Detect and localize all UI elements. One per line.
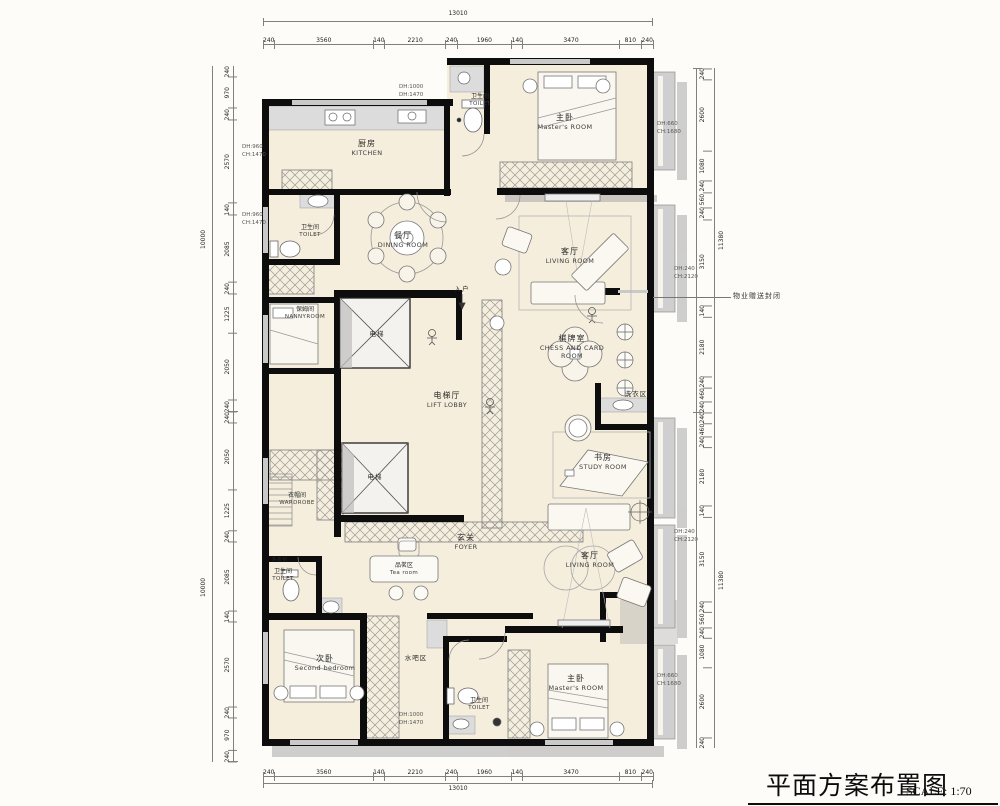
dim-segment: 240 [697,207,708,218]
dim-segment: 240 [697,601,708,612]
dim-segment: 240 [697,627,708,638]
dim-segment: 240 [222,283,233,294]
room-label-living-bottom: 客厅LIVING ROOM [566,551,615,569]
room-label-elevator-lower: 电梯 [368,473,383,481]
room-label-laundry: 洗衣区 [625,390,648,398]
dim-segment: 810 [619,32,641,44]
dim-segment: 2050 [222,423,233,490]
dim-segment: 240 [222,109,233,120]
room-label-toilet-top: 卫生间TOILET [469,93,491,107]
dim-segment: 240 [263,32,274,44]
title-underline [748,803,998,805]
dim-segment: 1960 [457,32,511,44]
dim-segment: 460 [697,388,708,401]
dim-segment: 240 [222,66,233,77]
dim-segment: 2085 [222,215,233,283]
dim-segment: 240 [642,32,653,44]
dim-segment: 1080 [697,151,708,181]
dim-segment: 3470 [523,32,619,44]
room-label-lift-lobby: 电梯厅LIFT LOBBY [427,391,467,409]
dim-segment: 1080 [697,638,708,667]
dim-right-lower: 2404602402180140315024056024010802600240 [696,412,708,748]
dim-segment: 240 [642,764,653,776]
dim-top-total: 13010 [263,10,653,17]
annotation-dh-right-master-bottom: DH:660CH:1680 [657,673,681,688]
dim-segment: 140 [222,204,233,215]
room-label-elevator-upper: 电梯 [370,330,385,338]
dim-segment: 1225 [222,491,233,531]
dim-right-total-lower: 11380 [716,412,727,748]
annotation-dh-right-living-top: DH:240CH:2120 [674,266,698,281]
room-label-living-top: 客厅LIVING ROOM [546,247,595,265]
dim-bottom-total-line [263,783,653,784]
dim-segment: 240 [222,707,233,718]
dim-segment: 560 [697,612,708,627]
dim-left-total-line [212,66,213,762]
dim-segment: 2085 [222,543,233,612]
dim-left-total-lower: 10000 [198,412,209,762]
dim-segment: 140 [222,611,233,622]
dim-segment: 240 [263,764,274,776]
dim-top-segments: 2403560140221024019601403470810240 [263,32,653,45]
dim-segment: 3560 [274,764,373,776]
dim-segment: 2210 [385,764,446,776]
room-label-foyer: 玄关FOYER [454,533,477,551]
annotation-dh-left-1: DH:960CH:1470 [242,144,262,159]
annotation-dh-right-master-top: DH:660CH:1680 [657,121,681,136]
dim-segment: 140 [697,505,708,516]
dim-segment: 2600 [697,667,708,736]
gift-label: 物业赠送封闭 [733,291,781,301]
drawing-scale: SCALE: 1:70 [906,784,972,799]
dim-segment: 2050 [222,334,233,401]
dim-segment: 240 [697,376,708,387]
fan-icon [617,324,633,396]
dim-segment: 3470 [523,764,619,776]
annotation-dh-bottom: DH:1000DH:1470 [399,712,423,727]
dim-segment: 240 [446,764,457,776]
dim-segment: 140 [512,32,523,44]
dim-segment: 2210 [385,32,446,44]
dim-segment: 2600 [697,79,708,150]
dim-segment: 140 [373,764,384,776]
room-label-master-bottom: 主卧Master's ROOM [549,674,604,692]
dim-bottom-total: 13010 [263,785,653,792]
dim-segment: 240 [697,68,708,79]
dim-segment: 140 [697,305,708,316]
dim-segment: 3150 [697,517,708,601]
dim-segment: 460 [697,423,708,435]
dim-segment: 240 [222,401,233,412]
dim-segment: 2180 [697,447,708,505]
dim-segment: 970 [222,719,233,751]
annotation-dh-right-living-bottom: DH:240CH:2120 [674,529,698,544]
room-label-kitchen: 厨房KITCHEN [352,139,383,157]
dim-segment: 2570 [222,120,233,203]
dim-right-total-upper: 11380 [716,68,727,412]
room-label-washer: 洗衣机 [272,558,289,564]
dim-segment: 240 [222,751,233,762]
floor-plan-page: 厨房KITCHEN 卫生间TOILET 主卧Master's ROOM 餐厅DI… [0,0,1000,806]
room-label-water-bar: 水吧区 [405,654,428,662]
dim-segment: 2570 [222,623,233,708]
room-label-toilet-bottom: 卫生间TOILET [468,697,490,711]
room-label-study: 书房STUDY ROOM [579,453,627,471]
room-label-tea: 品茗区Tea room [390,562,418,576]
dim-segment: 240 [697,180,708,191]
dim-segment: 240 [697,412,708,423]
room-label-toilet-lower-left: 卫生间TOILET [272,568,294,582]
dim-segment: 3560 [274,32,373,44]
dim-segment: 240 [222,531,233,542]
dim-segment: 240 [446,32,457,44]
dim-segment: 1960 [457,764,511,776]
dim-segment: 1225 [222,294,233,334]
annotation-dh-left-2: DH:960CH:1470 [242,212,262,227]
floor-plan-svg [0,0,1000,806]
dim-top-total-line [263,21,653,22]
dim-left-upper: 2409702402570140208524012252050240 [222,66,234,412]
dim-segment: 240 [697,401,708,412]
dim-segment: 240 [697,436,708,447]
room-label-toilet-left: 卫生间TOILET [299,224,321,238]
room-label-dining: 餐厅DINING ROOM [378,231,428,249]
dim-segment: 240 [697,737,708,748]
room-label-second-bedroom: 次卧Second bedroom [295,654,356,672]
room-label-master-top: 主卧Master's ROOM [538,113,593,131]
room-label-chess: 棋牌室CHESS AND CARD ROOM [537,334,607,360]
dim-segment: 3150 [697,219,708,305]
room-label-entry: 入户 [455,285,470,293]
dim-right-total-line [714,68,715,748]
dim-left-lower: 2402050122524020851402570240970240 [222,412,234,762]
dim-bottom-segments: 2403560140221024019601403470810240 [263,764,653,777]
dim-segment: 560 [697,192,708,207]
dim-segment: 810 [619,764,641,776]
dim-segment: 140 [373,32,384,44]
dim-segment: 240 [222,412,233,423]
room-label-wardrobe: 衣帽间WARDROBE [279,492,315,506]
dim-segment: 970 [222,77,233,108]
dim-segment: 2180 [697,317,708,377]
dim-segment: 140 [512,764,523,776]
room-label-nanny: 保姆间NANNYROOM [285,306,325,320]
dim-left-total-upper: 10000 [198,66,209,412]
dim-right-upper: 2402600108024056024031501402180240460240 [696,68,708,412]
annotation-dh-top: DH:1000DH:1470 [399,84,423,99]
